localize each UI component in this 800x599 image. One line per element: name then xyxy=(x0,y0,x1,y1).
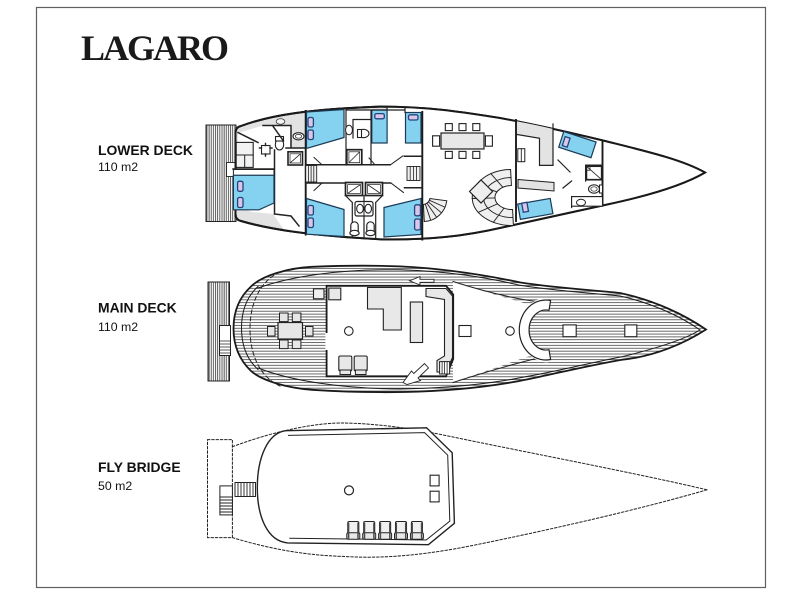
svg-text:110 m2: 110 m2 xyxy=(98,320,138,334)
svg-text:110 m2: 110 m2 xyxy=(98,160,138,174)
svg-text:50 m2: 50 m2 xyxy=(98,479,132,493)
svg-text:FLY BRIDGE: FLY BRIDGE xyxy=(98,459,181,475)
svg-text:LAGARO: LAGARO xyxy=(81,28,228,68)
svg-text:LOWER DECK: LOWER DECK xyxy=(98,142,193,158)
svg-text:MAIN DECK: MAIN DECK xyxy=(98,300,177,316)
